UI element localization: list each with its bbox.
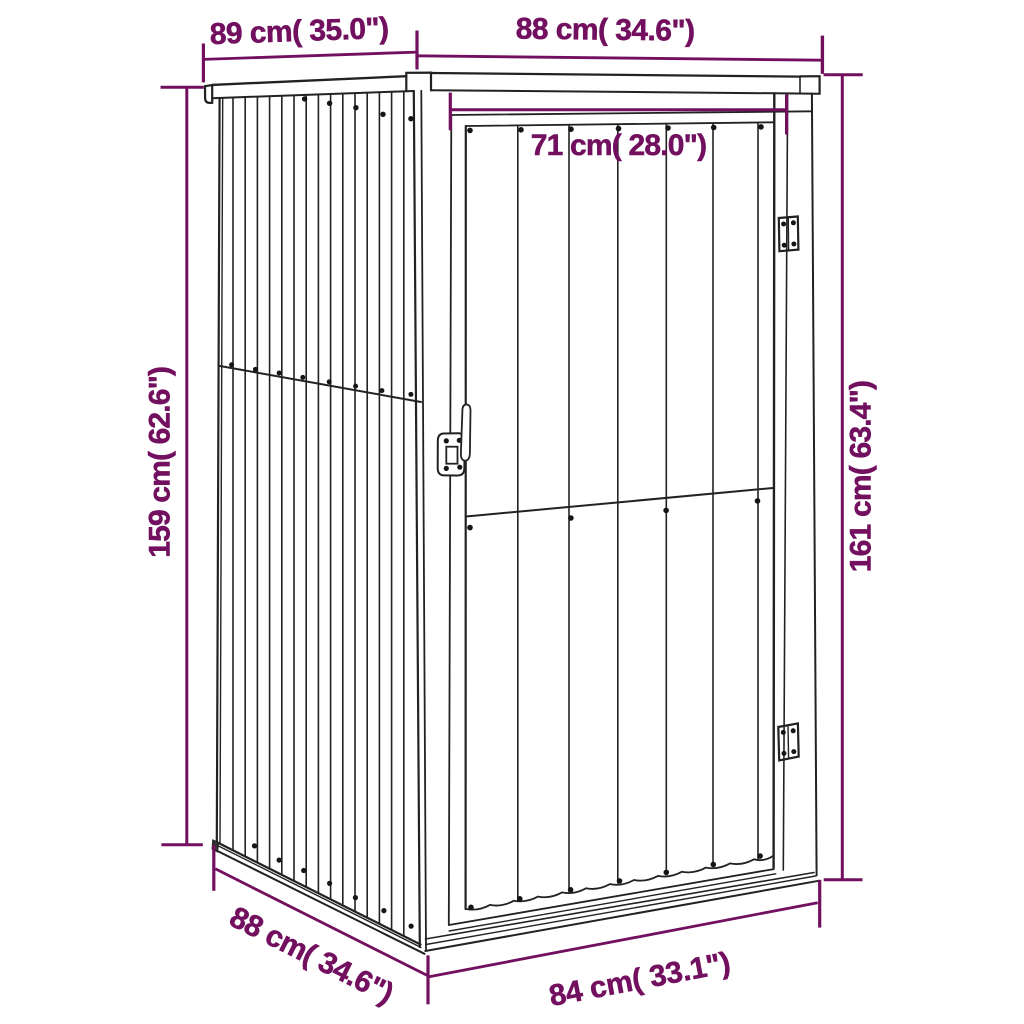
svg-text:159 cm( 62.6"): 159 cm( 62.6") <box>144 367 177 558</box>
svg-text:88 cm( 34.6"): 88 cm( 34.6") <box>515 13 694 48</box>
svg-text:161 cm( 63.4"): 161 cm( 63.4") <box>844 381 877 572</box>
svg-text:71 cm( 28.0"): 71 cm( 28.0") <box>531 129 707 162</box>
svg-text:89 cm( 35.0"): 89 cm( 35.0") <box>209 12 389 51</box>
